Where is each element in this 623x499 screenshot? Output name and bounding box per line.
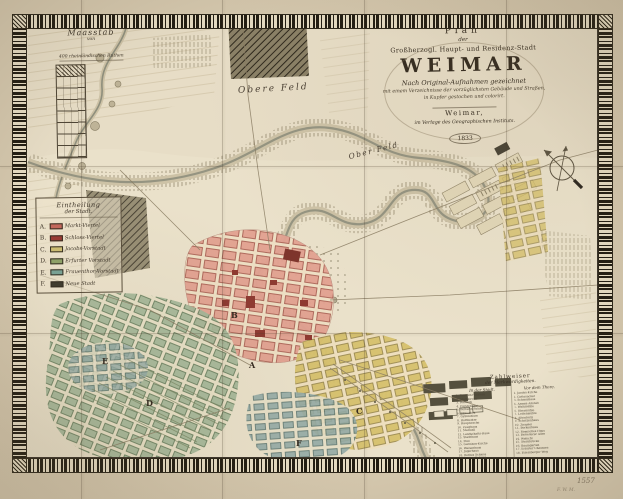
index-entries-gates: 1. Jacobs-Kirche2. Gottesacker3. Schiess… — [513, 390, 568, 455]
legend-item: D. Erfurter Vorstadt — [40, 256, 118, 264]
legend-item-swatch — [50, 235, 63, 241]
border-band-bottom — [25, 458, 598, 473]
scale-unit: 400 rheinländischen Ruthen — [59, 53, 124, 61]
quarter-letter-a: A — [249, 360, 255, 370]
title-cartouche: Plan der Großherzogl. Haupt- und Residen… — [377, 24, 551, 146]
legend-item-label: Frauenthor-Vorstadt — [65, 268, 119, 275]
scale-bar: Maasstab von 400 rheinländischen Ruthen — [43, 27, 141, 159]
slope-east — [540, 230, 592, 300]
legend-item-letter: D. — [40, 257, 48, 264]
index-column-gates: Vor dem Thore. 1. Jacobs-Kirche2. Gottes… — [510, 384, 571, 462]
index-column-city: In der Stadt. 1. Residenz-Schloss2. Stad… — [454, 386, 514, 464]
legend-item-letter: B. — [40, 234, 48, 241]
legend-item-letter: C. — [40, 246, 48, 253]
legend-item-swatch — [50, 246, 63, 252]
city-quarter-frauenthor — [68, 342, 148, 394]
legend-item-swatch — [50, 269, 63, 275]
pencil-note: F. W. M. — [557, 488, 575, 493]
legend-item-letter: E. — [40, 269, 48, 276]
border-band-right — [598, 27, 613, 458]
legend-item-letter: A. — [40, 223, 48, 230]
quarter-letter-b: B — [231, 310, 238, 320]
border-band-left — [12, 27, 27, 458]
legend-item: C. Jacobs-Vorstadt — [40, 245, 118, 253]
pencil-number: 1557 — [577, 477, 595, 485]
legend-item-label: Schloss-Viertel — [65, 234, 104, 241]
legend-item-label: Jacobs-Vorstadt — [65, 246, 106, 253]
border-corner-tr — [598, 14, 613, 29]
legend-item: B. Schloss-Viertel — [40, 233, 118, 241]
legend-items: A. Markt-Viertel B. Schloss-Viertel C. J… — [40, 222, 119, 288]
grove-north — [152, 34, 212, 70]
fold-line-v3 — [364, 0, 365, 499]
legend-item-letter: F. — [40, 280, 48, 287]
index-entries-city: 1. Residenz-Schloss2. Stadtkirche3. Rath… — [456, 392, 512, 464]
border-band-top — [25, 14, 598, 29]
legend-item-swatch — [50, 258, 63, 264]
border-corner-br — [598, 458, 613, 473]
legend-item-swatch — [50, 223, 63, 229]
fold-line-h2 — [0, 333, 623, 334]
fold-line-h1 — [0, 166, 623, 167]
legend-item-label: Markt-Viertel — [65, 223, 100, 229]
fold-line-v4 — [506, 0, 507, 499]
quarter-letter-c: C — [356, 406, 362, 416]
border-corner-bl — [12, 458, 27, 473]
quarter-letter-d: D — [146, 398, 153, 408]
legend-item-swatch — [50, 281, 63, 287]
fold-line-v1 — [81, 0, 82, 499]
legend-item: F. Neue Stadt — [40, 279, 118, 287]
quarter-letter-e: E — [102, 356, 108, 366]
legend-item: E. Frauenthor-Vorstadt — [40, 268, 118, 276]
legend-title-2: der Stadt. — [40, 208, 118, 218]
border-corner-tl — [12, 14, 27, 29]
legend-city-quarters: Eintheilung der Stadt. A. Markt-Viertel … — [35, 196, 122, 293]
scale-ruler — [55, 64, 87, 159]
index-of-landmarks: Zahlweiser der Merkwürdigkeiten. In der … — [453, 372, 571, 465]
legend-item: A. Markt-Viertel — [40, 222, 118, 230]
fold-line-v2 — [222, 0, 223, 499]
map-sheet: Plan der Großherzogl. Haupt- und Residen… — [0, 0, 623, 499]
quarter-letter-f: F — [296, 438, 302, 448]
field-parcels-e — [540, 290, 596, 380]
legend-item-label: Erfurter Vorstadt — [65, 257, 111, 264]
